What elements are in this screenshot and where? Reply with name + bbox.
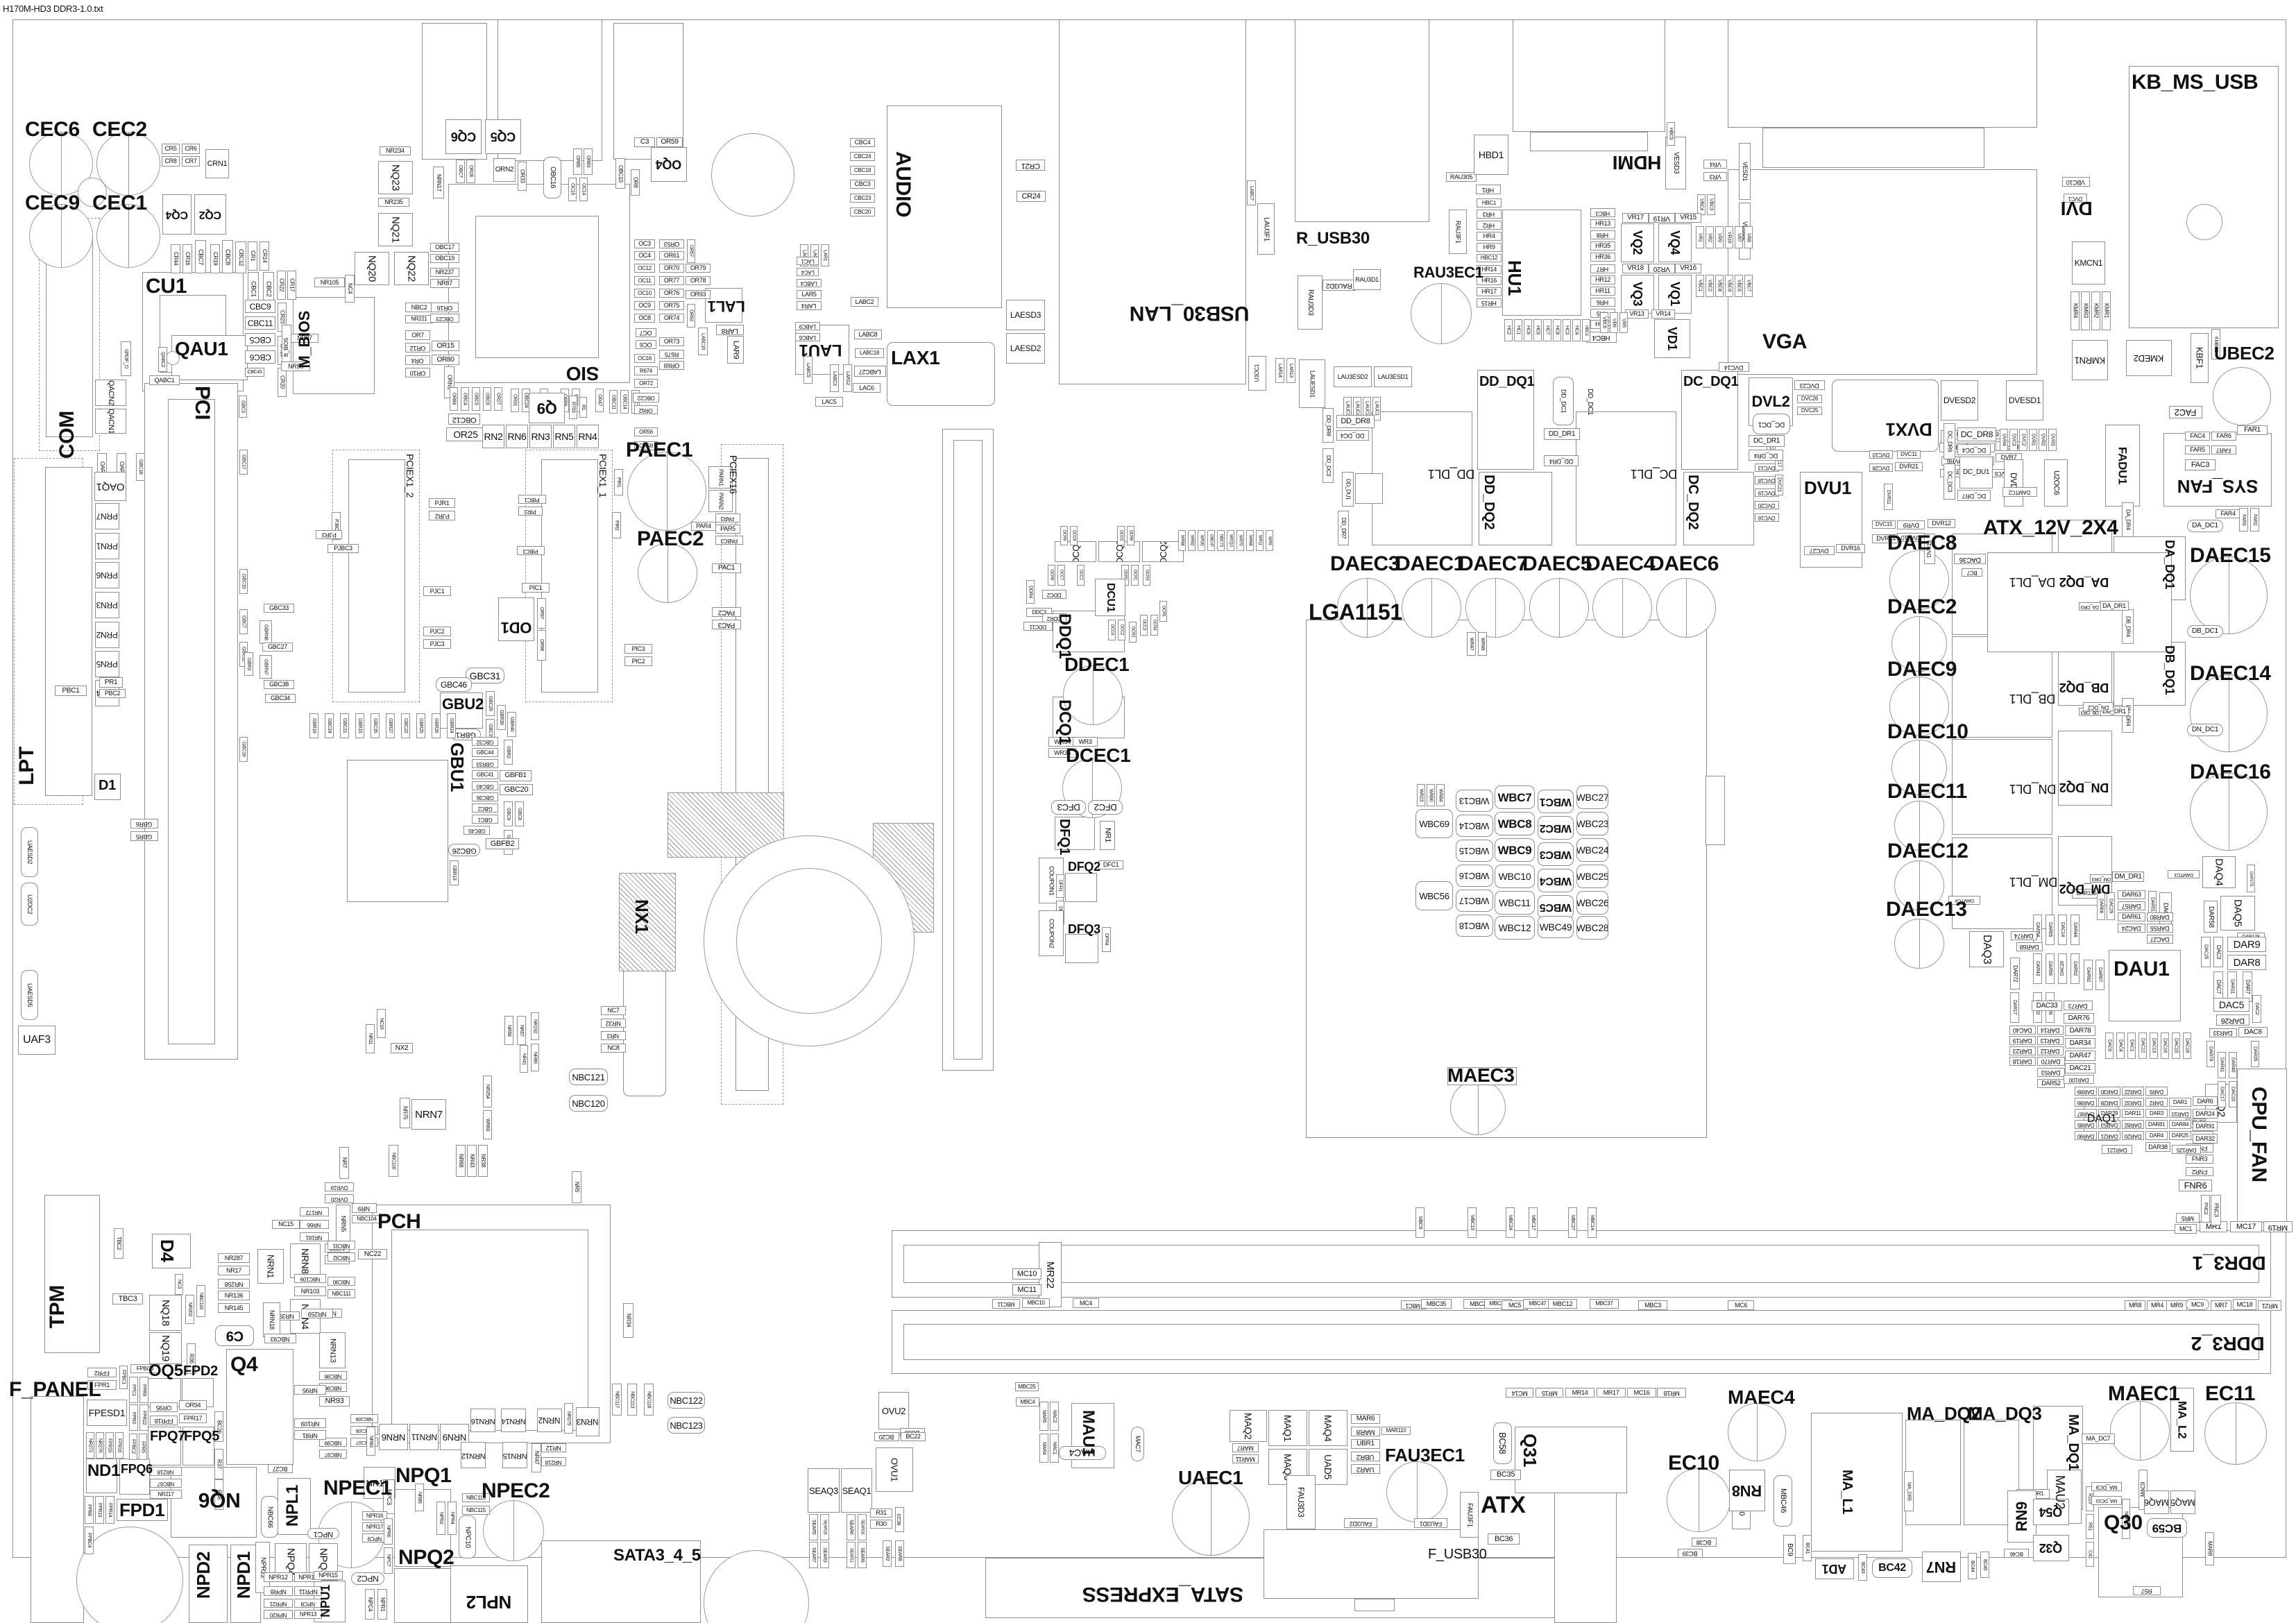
mbc17: MBC17	[1529, 1207, 1538, 1238]
ddc11: DDC11	[1023, 622, 1053, 631]
npec2-cap	[483, 1500, 544, 1561]
cr19: CR19	[210, 244, 220, 273]
wbc14: WBC14	[1456, 815, 1493, 837]
nbc117: NBC117	[612, 1384, 622, 1416]
fau3ec1-label: FAU3EC1	[1385, 1446, 1465, 1465]
dn-dc2: DN_DC2	[2083, 702, 2114, 711]
sear5: SEAR5	[809, 1514, 818, 1540]
vbc10: VBC10	[2062, 177, 2090, 187]
mc11: MC11	[1012, 1284, 1041, 1295]
dd-dr4: DD_DR4	[1544, 455, 1579, 466]
dar9: DAR9	[2227, 937, 2266, 952]
hr15: HR15	[1477, 298, 1502, 307]
u2oc2: U2OC2	[21, 883, 38, 926]
mc18: MC18	[2233, 1299, 2256, 1310]
lar13: LAR13	[1286, 358, 1295, 383]
rau3d1: RAU3D1	[1353, 269, 1381, 290]
file-title: H170M-HD3 DDR3-1.0.txt	[3, 3, 103, 15]
sear6: SEAR6	[847, 1514, 856, 1540]
labc3: LABC3	[830, 364, 839, 392]
daec16-label: DAEC16	[2190, 762, 2271, 783]
da-dr4: DA_DR4	[2122, 502, 2134, 537]
pjc2: PJC2	[423, 627, 451, 636]
r31: R31	[870, 1509, 892, 1518]
nr237: NR237	[430, 268, 459, 277]
wbc27: WBC27	[1576, 785, 1608, 809]
wbc15: WBC15	[1456, 840, 1493, 862]
vr3: VR3	[1703, 172, 1727, 181]
dar3: DAR3	[2145, 1109, 2168, 1118]
dar89: DAR89	[2075, 1087, 2097, 1096]
lal1-label: LAL1	[708, 298, 745, 314]
daec10-label: DAEC10	[1887, 722, 1968, 742]
gbc2: GBC2	[472, 804, 498, 813]
wr11: WR11	[1256, 530, 1264, 551]
dar22: DAR22	[2122, 1087, 2144, 1096]
npr22: NPR22	[255, 1542, 270, 1593]
nrn17: NRN17	[433, 167, 444, 198]
pbc2: PBC2	[99, 689, 126, 698]
pabc3: PABC3	[715, 536, 743, 545]
dac33: DAC33	[2032, 1001, 2062, 1011]
dar72: DAR72	[2010, 958, 2020, 989]
cbc24: CBC24	[850, 152, 875, 161]
nrn1: NRN1	[257, 1249, 284, 1284]
cpu-fan-label: CPU_FAN	[2248, 1087, 2269, 1186]
dar79: DAR79	[2206, 1041, 2215, 1067]
mac7: MAC7	[1131, 1427, 1144, 1461]
daec14-label: DAEC14	[2190, 663, 2271, 684]
hr6: HR6	[1590, 298, 1615, 307]
bc41: BC41	[1803, 1535, 1812, 1561]
r1: R1	[579, 397, 587, 418]
prn1: PRN1	[95, 533, 119, 559]
dc-dl1-label: DC_DL1	[1631, 468, 1677, 482]
hc8: HC8	[1553, 319, 1561, 341]
dfq2-label: DFQ2	[1068, 860, 1100, 874]
cr7: CR7	[182, 156, 200, 167]
nr9: NR9	[352, 1203, 377, 1213]
dar74: DAR74	[2011, 931, 2037, 940]
rau3d2: RAU3D2	[1323, 280, 1356, 291]
hole-top	[711, 133, 794, 216]
dvc10: DVC10	[1869, 450, 1893, 459]
oc3: OC3	[634, 239, 655, 248]
dm-dq2-label: DM_DQ2	[2059, 883, 2110, 897]
dcr8: DCR8	[1048, 565, 1055, 586]
usb30-lan-label: USB30_LAN	[1130, 303, 1249, 323]
dar100: DAR100	[2064, 1075, 2094, 1084]
bc23: BC23	[895, 1507, 904, 1532]
cr5: CR5	[162, 144, 180, 154]
nrn16: NRN16	[470, 1409, 495, 1432]
dar56: DAR56	[2046, 953, 2055, 984]
or79: OR79	[686, 264, 711, 273]
npec1-label: NPEC1	[323, 1478, 392, 1499]
obc10: OBC10	[615, 158, 625, 189]
pic1: PIC1	[522, 583, 550, 593]
r51: R51	[2086, 1514, 2094, 1539]
prn2: PRN2	[95, 622, 119, 648]
ddr3-2-inner	[903, 1324, 2259, 1360]
db-dc1: DB_DC1	[2187, 625, 2223, 638]
far7: FAR7	[2211, 445, 2236, 454]
fpanel-connector	[31, 1396, 84, 1623]
dar81: DAR81	[2145, 1120, 2168, 1129]
gbc44: GBC44	[472, 748, 498, 757]
wbc26: WBC26	[1576, 891, 1608, 915]
ubr2: UBR2	[1351, 1452, 1380, 1461]
nbc108: NBC108	[350, 1414, 378, 1423]
daq3: DAQ3	[1969, 931, 2004, 967]
cbc6: CBC6	[245, 350, 275, 364]
cr24: CR24	[1017, 191, 1046, 202]
q4-label: Q4	[230, 1354, 257, 1375]
nr3: NR3	[601, 1031, 626, 1040]
npc2: NPC2	[351, 1572, 384, 1585]
fpesd1: FPESD1	[87, 1400, 127, 1426]
dc-du1: DC_DU1	[1959, 457, 1993, 488]
coupon2: COUPON2	[1039, 910, 1064, 956]
wbc9: WBC9	[1495, 838, 1535, 862]
ma-dc9: MA_DC9	[2091, 1482, 2122, 1491]
fpr14: FPR14	[105, 1496, 114, 1524]
obc23: OBC23	[430, 314, 459, 323]
dac29: DAC29	[2107, 892, 2115, 920]
cec1-label: CEC1	[92, 193, 147, 214]
rau305: RAU305	[1446, 172, 1477, 182]
cr8: CR8	[162, 156, 180, 167]
dc-dr1: DC_DR1	[1749, 435, 1785, 447]
nbc110: NBC110	[196, 1285, 205, 1317]
mr5: MR5	[2176, 1213, 2200, 1223]
sata3-4-5-label: SATA3_4_5	[613, 1547, 701, 1564]
wbc4: WBC4	[1538, 869, 1574, 892]
nr259: NR259	[301, 1309, 333, 1318]
dd-dq2-label: DD_DQ2	[1482, 475, 1496, 533]
cbc8: CBC8	[222, 240, 233, 273]
lar8: LAR8	[716, 325, 744, 335]
dar76: DAR76	[2064, 1013, 2094, 1023]
pciex1-2-label: PCIEX1_2	[405, 454, 415, 501]
dvc15: DVC15	[1872, 520, 1896, 529]
nbc113: NBC113	[627, 1384, 637, 1416]
wbc18: WBC18	[1456, 915, 1493, 937]
labc27: LABC27	[854, 366, 886, 377]
rn3: RN3	[529, 425, 552, 448]
mar110: MAR110	[1381, 1427, 1411, 1435]
mar6: MAR6	[1351, 1414, 1380, 1424]
nr41: NR41	[520, 1045, 528, 1073]
nbc2: NBC2	[405, 303, 433, 312]
fadu1: FADU1	[2105, 425, 2140, 507]
db-dl1-label: DB_DL1	[2009, 692, 2055, 706]
q32: Q32	[2033, 1535, 2069, 1561]
gbr27: GBR27	[386, 713, 395, 738]
dar82: DAR82	[2122, 1120, 2144, 1129]
daec8-label: DAEC8	[1887, 533, 1957, 554]
gbu1-label: GBU1	[448, 742, 466, 795]
mr15: MR15	[1536, 1388, 1563, 1397]
oc9: OC9	[634, 301, 655, 310]
q30-label: Q30	[2104, 1513, 2143, 1533]
nrn13: NRN13	[319, 1332, 346, 1368]
nr202: NR202	[185, 1295, 194, 1324]
prn7: PRN7	[95, 503, 119, 529]
nq19: NQ19	[149, 1332, 182, 1364]
vq4: VQ4	[1658, 223, 1692, 262]
mr14: MR14	[1565, 1388, 1595, 1397]
dac36: DAC36	[1954, 554, 1986, 564]
fpbc4: FPBC4	[85, 1527, 94, 1554]
labc2: LABC2	[851, 297, 878, 307]
dn-dc1: DN_DC1	[2187, 724, 2223, 736]
vga-label: VGA	[1762, 332, 1807, 352]
nbc123: NBC123	[667, 1417, 705, 1434]
daec1-cap	[1402, 578, 1461, 638]
gbr24: GBR24	[447, 713, 456, 738]
or92: OR92	[687, 304, 695, 328]
nc15: NC15	[272, 1220, 300, 1229]
nr181: NR181	[300, 1232, 329, 1241]
obc7: OBC7	[456, 160, 465, 183]
gbc45: GBC45	[464, 826, 490, 835]
ddc2: DDC2	[1042, 590, 1066, 599]
q9: Q9	[529, 393, 565, 423]
mar8-2: MAR8	[1351, 1427, 1380, 1436]
od1-label: OD1	[501, 620, 532, 636]
dvc14: DVC14	[1719, 362, 1749, 372]
cr20: CR20	[278, 368, 287, 397]
pic3: PIC3	[624, 644, 652, 654]
dar65: DAR65	[2046, 915, 2055, 945]
nrn8: NRN8	[290, 1243, 321, 1278]
nrn15: NRN15	[502, 1442, 527, 1468]
dvr20: DVR20	[325, 1194, 354, 1203]
maq6: MAQ6	[2144, 1490, 2169, 1514]
hr35: HR35	[1590, 241, 1615, 250]
ad1: AD1	[1815, 1558, 1854, 1579]
nq20: NQ20	[355, 252, 389, 285]
daec12-label: DAEC12	[1887, 841, 1968, 862]
dac13: DAC13	[2150, 1033, 2158, 1059]
oq5-label: OQ5	[148, 1363, 183, 1379]
gbr40: GBR40	[507, 712, 516, 737]
oc15: OC15	[568, 178, 577, 201]
dvi-connector	[1728, 19, 2037, 128]
mbios-label: M_BIOS	[297, 311, 312, 372]
wbc3: WBC3	[1538, 842, 1574, 866]
damtc2: DAMTC2	[2002, 487, 2037, 497]
dar125: DAR125	[2172, 1145, 2201, 1154]
dar92: DAR92	[2084, 960, 2093, 990]
mr18: MR18	[1657, 1388, 1686, 1397]
dvr3: DVR3	[2048, 429, 2057, 451]
ec11-label: EC11	[2205, 1384, 2255, 1404]
r674: R674	[634, 366, 658, 375]
nrn2: NRN2	[537, 1409, 562, 1432]
nr58: NR58	[504, 1016, 513, 1045]
ma-l1-box	[1811, 1413, 1903, 1552]
bc20: BC20	[874, 1432, 899, 1441]
mc9: MC9	[2186, 1299, 2209, 1310]
par3: PAR3	[715, 513, 740, 522]
mbc27: MBC27	[1568, 1207, 1577, 1238]
or61: OR61	[659, 251, 684, 260]
maec4-cap	[1728, 1403, 1786, 1461]
dvi-label: DVI	[2061, 198, 2093, 218]
laesd2: LAESD2	[1006, 333, 1045, 364]
gbrn7: GBRN7	[260, 655, 272, 679]
dar8: DAR8	[2227, 955, 2266, 970]
prn3: PRN3	[95, 592, 119, 618]
lau1-label: LAU1	[799, 341, 842, 358]
db-dr4: DB_DR4	[2122, 609, 2134, 644]
cr6: CR6	[182, 144, 200, 154]
npc10: NPC10	[459, 1515, 476, 1558]
pjc1: PJC1	[423, 586, 451, 596]
nr17: NR17	[218, 1266, 250, 1275]
dar47: DAR47	[2065, 1051, 2095, 1061]
dd-du1-box	[1355, 473, 1383, 504]
dm-dl1-label: DM_DL1	[2009, 876, 2057, 890]
damtc3: DAMTC3	[2168, 870, 2200, 878]
nc4: NC4	[345, 275, 355, 303]
nr109: NR109	[294, 1418, 326, 1428]
gbc10: GBC10	[239, 569, 248, 594]
hr3: HR3	[1477, 210, 1502, 219]
cbc23: CBC23	[850, 194, 875, 203]
vr7: VR7	[1735, 226, 1743, 248]
dvc20: DVC20	[1755, 501, 1779, 509]
nbc122: NBC122	[667, 1392, 705, 1409]
nr93: NR93	[319, 1396, 350, 1407]
maec1-label: MAEC1	[2108, 1384, 2180, 1404]
dfc2: DFC2	[1088, 800, 1123, 815]
kb-ms-usb-connector	[2129, 66, 2279, 328]
daq4: DAQ4	[2202, 856, 2236, 888]
nr271: NR271	[86, 1432, 94, 1459]
dvc2: DVC2	[2019, 429, 2027, 451]
daec7-cap	[1465, 578, 1525, 638]
dau1-label: DAU1	[2114, 959, 2169, 980]
rn2: RN2	[482, 425, 504, 448]
lac6: LAC6	[853, 383, 881, 393]
ma-dq3-label: MA_DQ3	[1968, 1404, 2042, 1423]
gbc29: GBC29	[486, 691, 495, 716]
nbc67: NBC67	[150, 1479, 182, 1488]
labc18: LABC18	[855, 348, 884, 358]
gbc7: GBC7	[239, 609, 248, 634]
npc7: NPC7	[384, 1547, 393, 1574]
npr20: NPR20	[264, 1610, 293, 1619]
dvx1-capsule	[1832, 380, 1939, 452]
battery-inner	[736, 868, 882, 1014]
gbr3: GBR3	[244, 652, 253, 676]
wbc2: WBC2	[1538, 816, 1574, 840]
or31: OR31	[511, 389, 519, 412]
nr66: NR66	[300, 1220, 329, 1229]
nc8: NC8	[601, 1044, 626, 1053]
pciex16-label: PCIEX16	[729, 455, 738, 498]
dar38: DAR38	[2145, 1142, 2170, 1152]
wbc5: WBC5	[1538, 895, 1574, 919]
sear8: SEAR8	[895, 1540, 904, 1567]
dac25: DAC25	[2201, 937, 2211, 967]
hr12: HR12	[1590, 275, 1615, 284]
dc-dc1: DC_DC1	[1753, 414, 1790, 434]
labc7: LABC7	[1247, 180, 1256, 205]
sear9: SEAR9	[858, 1542, 867, 1568]
hdmi-label: HDMI	[1613, 153, 1661, 172]
dar35: DAR35	[2251, 1041, 2259, 1067]
dn-dq2-label: DN_DQ2	[2059, 781, 2109, 795]
nd1-label: ND1	[87, 1463, 120, 1479]
dar52-v: DAR52	[2070, 953, 2080, 984]
db-dq2-label: DB_DQ2	[2059, 681, 2109, 695]
nr32: NR32	[601, 1019, 626, 1028]
tbc2: TBC2	[114, 1228, 124, 1259]
gbc40: GBC40	[472, 781, 498, 790]
rn7: RN7	[1922, 1552, 1961, 1582]
uaesd5: UAESD5	[21, 970, 38, 1020]
npu1-label: NPU1	[319, 1585, 332, 1621]
fpr22: FPR22	[139, 1404, 148, 1431]
nr34: NR34	[623, 1303, 633, 1338]
gbc3: GBC3	[239, 396, 247, 418]
labc10: LABC10	[698, 328, 708, 355]
r37: R37	[214, 1449, 223, 1479]
dar12: DAR12	[2037, 1046, 2064, 1055]
mr8: MR8	[2125, 1300, 2145, 1311]
bc59: BC59	[2147, 1518, 2187, 1538]
gbc27: GBC27	[262, 643, 293, 652]
vr9: VR9	[1715, 226, 1724, 248]
fpd1-label: FPD1	[119, 1501, 164, 1520]
obc19: OBC19	[430, 254, 459, 263]
lga-maec3-label: MAEC3	[1447, 1066, 1515, 1085]
nx2: NX2	[391, 1043, 413, 1053]
nrn7: NRN7	[411, 1099, 446, 1130]
npr4: NPR4	[448, 1502, 457, 1535]
nbc92: NBC92	[328, 1252, 355, 1261]
dvr16: DVR16	[1836, 544, 1865, 553]
cq4: CQ4	[162, 194, 192, 235]
or80: OR80	[432, 355, 459, 365]
dar34: DAR34	[2065, 1038, 2095, 1048]
dvx1-label: DVX1	[1886, 420, 1932, 439]
seaq3: SEAQ3	[808, 1468, 840, 1513]
hc5: HC5	[1533, 319, 1542, 341]
vr14: VR14	[1651, 309, 1675, 318]
npr11: NPR11	[294, 1586, 322, 1596]
nr5: NR5	[572, 1171, 581, 1203]
npc8: NPC8	[294, 1599, 322, 1608]
nr85: NR85	[415, 1484, 424, 1511]
wbc11: WBC11	[1495, 891, 1535, 915]
dc-dr8: DC_DR8	[1957, 427, 1996, 441]
obc17: OBC17	[430, 243, 459, 252]
or62: OR62	[634, 405, 658, 414]
daec9-label: DAEC9	[1887, 659, 1957, 680]
qabc2: QABC2	[158, 347, 167, 372]
daec15-label: DAEC15	[2190, 545, 2271, 566]
oc10: OC10	[634, 289, 655, 298]
nr218-2: NR218	[541, 1457, 566, 1466]
dfq2-box	[1065, 873, 1097, 902]
nbc118: NBC118	[644, 1384, 654, 1416]
nr38: NR38	[478, 1145, 488, 1177]
